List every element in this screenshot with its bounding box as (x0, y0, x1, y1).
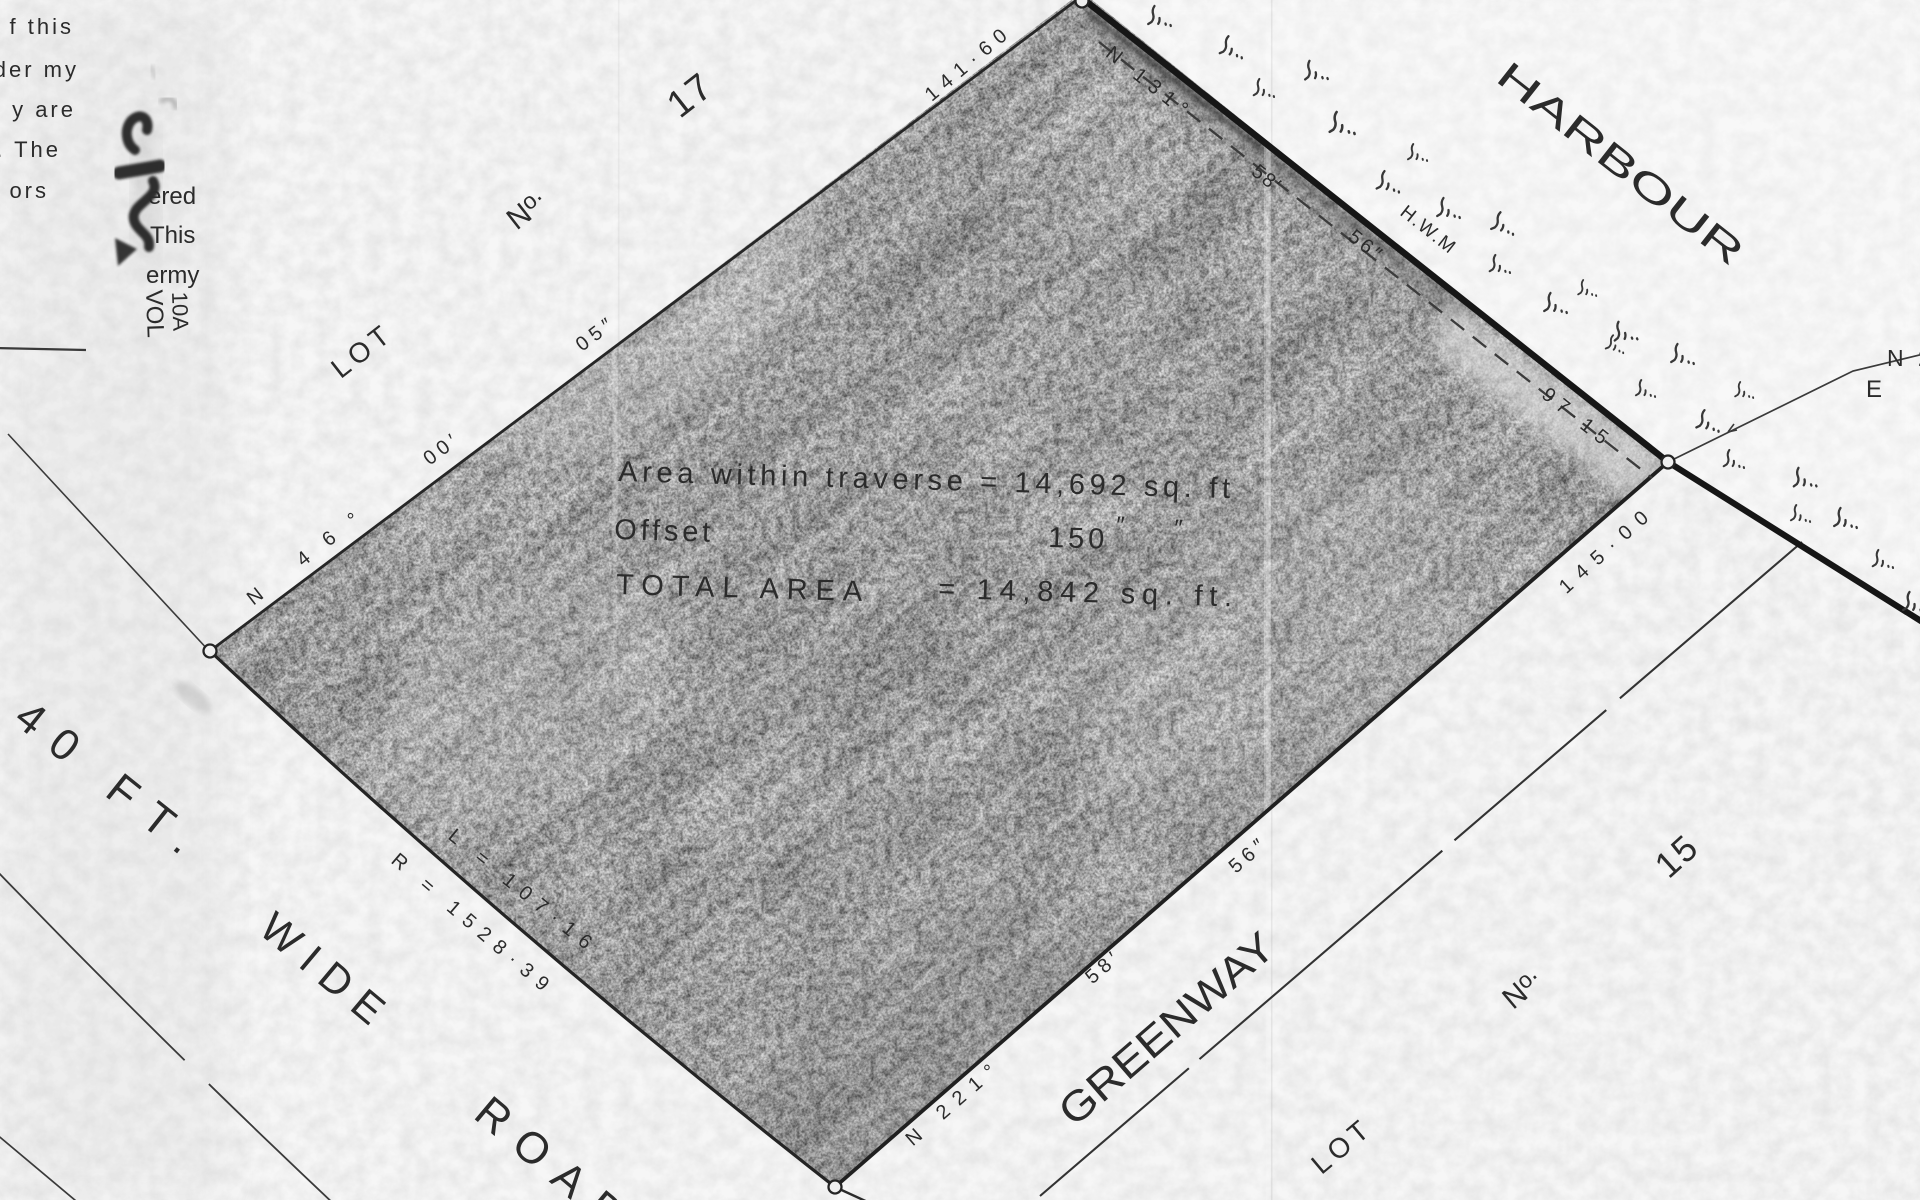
svg-text:VOL: VOL (140, 289, 169, 338)
svg-text:. The: . The (0, 137, 61, 162)
svg-text:This: This (150, 222, 195, 249)
svg-text:N 2: N 2 (1887, 345, 1920, 371)
svg-text:f this: f this (10, 14, 74, 39)
svg-text:″: ″ (1174, 515, 1184, 542)
svg-text:y are: y are (12, 97, 76, 122)
svg-text:der my: der my (0, 57, 79, 82)
svg-text:10A: 10A (167, 291, 193, 331)
svg-text:ors: ors (9, 178, 49, 203)
svg-text:″: ″ (1116, 512, 1126, 539)
svg-text:E: E (1866, 376, 1882, 403)
svg-text:ermy: ermy (146, 262, 199, 289)
svg-text:150: 150 (1048, 522, 1105, 556)
svg-text:ered: ered (148, 183, 196, 210)
